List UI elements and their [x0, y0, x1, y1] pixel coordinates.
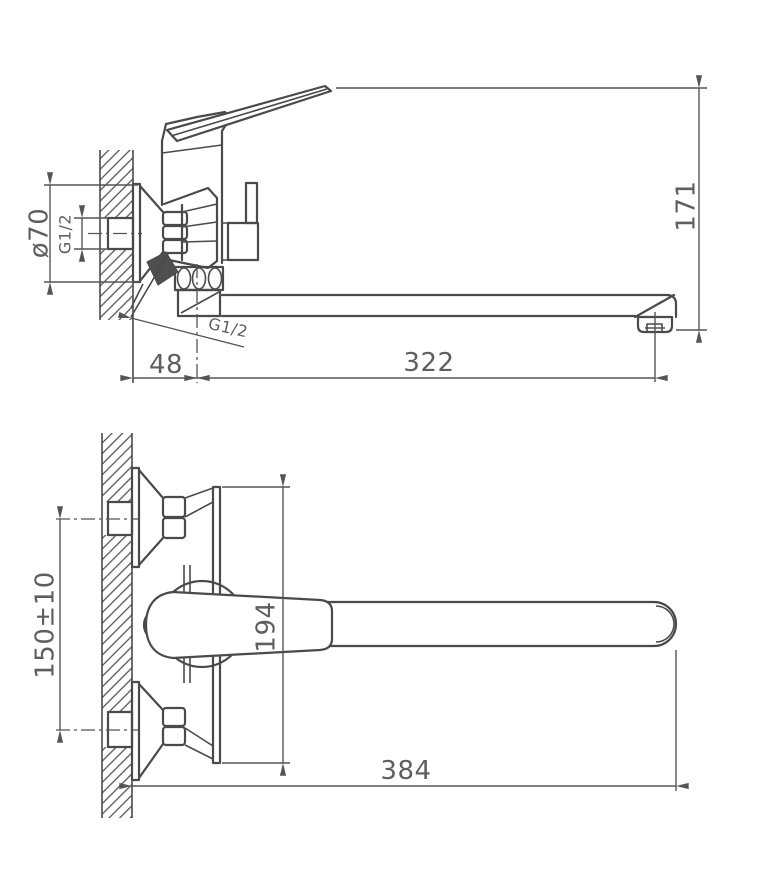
diverter-body — [228, 223, 258, 260]
nut-facet — [163, 708, 185, 726]
front-view: 150±10 194 384 — [31, 433, 677, 818]
faucet-dimension-drawing: ø70 G1/2 48 G1/2 322 171 — [0, 0, 757, 879]
wall-hatch-lower — [100, 250, 133, 320]
dim171-extension-lines — [336, 88, 707, 330]
body-seam — [162, 145, 222, 153]
wall-hatch — [102, 433, 132, 502]
escutcheon-cone-top — [139, 470, 163, 565]
escutcheon-plate — [133, 184, 140, 282]
dimension-label-overall-height: 171 — [672, 180, 702, 231]
dimension-label-inlet-thread: G1/2 — [56, 214, 75, 254]
coupling-band — [175, 267, 223, 290]
body-cone-top — [185, 488, 213, 517]
technical-drawing-page: ø70 G1/2 48 G1/2 322 171 — [0, 0, 757, 879]
body-cone-bottom — [185, 728, 213, 759]
wall-hatch-upper — [100, 150, 133, 218]
dimension-label-flange-diameter: ø70 — [25, 208, 55, 259]
escutcheon-cone-bottom — [139, 684, 163, 778]
wall-hatch — [102, 747, 132, 818]
lever-inner-line — [171, 89, 327, 136]
wall-hatch — [102, 535, 132, 712]
spout-side — [222, 295, 676, 343]
side-view: ø70 G1/2 48 G1/2 322 171 — [25, 86, 708, 383]
dimension-label-spout-reach: 322 — [403, 348, 454, 378]
diverter-stem — [246, 183, 257, 223]
junction-chamfer — [181, 292, 219, 313]
escutcheon-plate-bottom — [132, 682, 139, 780]
dimension-label-wall-offset: 48 — [149, 350, 183, 380]
coupling-hole — [193, 268, 206, 289]
spout-tube — [222, 295, 676, 317]
wall-section-front — [102, 433, 132, 818]
dimension-label-inlet-centers: 150±10 — [31, 571, 61, 679]
dimension-label-overall-length: 384 — [380, 756, 431, 786]
faucet-body-side — [131, 86, 331, 317]
escutcheon-plate-top — [132, 468, 139, 567]
dimension-label-body-height: 194 — [252, 601, 282, 652]
elbow-section — [147, 252, 178, 285]
coupling-hole — [209, 268, 222, 289]
side-view-dimensions: ø70 G1/2 48 G1/2 322 171 — [25, 88, 708, 383]
nut-facet — [163, 212, 187, 225]
dimension-label-spout-thread: G1/2 — [207, 314, 250, 342]
hex-boss-outline — [164, 188, 217, 268]
lever-handle-front — [146, 592, 332, 658]
nut-facet — [163, 518, 185, 538]
lever-handle — [167, 86, 331, 141]
coupling-hole — [178, 268, 191, 289]
nut-facet — [163, 497, 185, 517]
nut-facet — [163, 727, 185, 745]
nut-facet — [163, 226, 187, 239]
